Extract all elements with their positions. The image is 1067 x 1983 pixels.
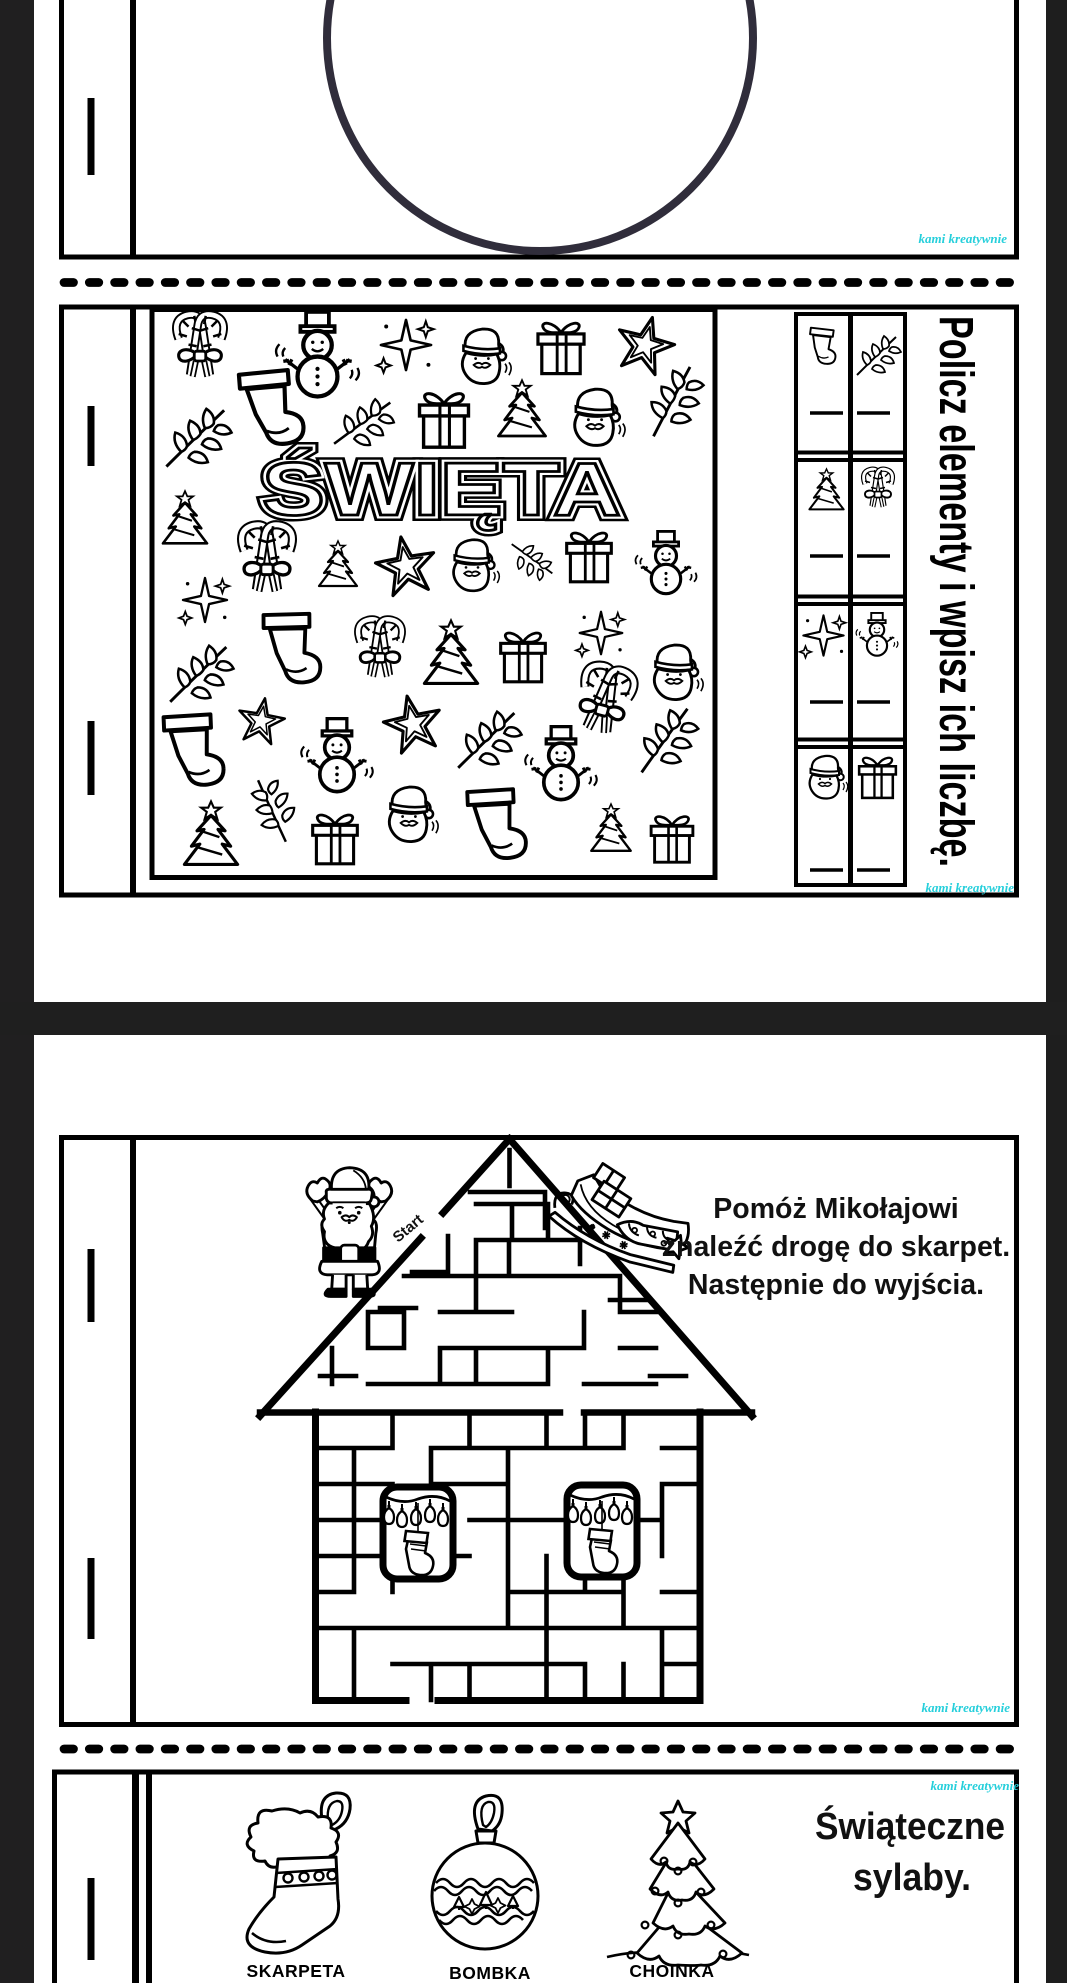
svg-text:znaleźć drogę do skarpet.: znaleźć drogę do skarpet. xyxy=(662,1231,1010,1263)
svg-text:SKARPETA: SKARPETA xyxy=(247,1961,346,1981)
svg-text:Policz elementy i wpisz ich li: Policz elementy i wpisz ich liczbę. xyxy=(929,316,982,867)
svg-text:ŚWIĘTA: ŚWIĘTA xyxy=(262,447,621,531)
svg-text:kami kreatywnie: kami kreatywnie xyxy=(922,1700,1011,1715)
svg-text:BOMBKA: BOMBKA xyxy=(449,1963,531,1983)
svg-text:Świąteczne: Świąteczne xyxy=(815,1804,1005,1848)
svg-text:kami kreatywnie: kami kreatywnie xyxy=(931,1778,1020,1793)
svg-text:Pomóż Mikołajowi: Pomóż Mikołajowi xyxy=(713,1193,958,1225)
svg-text:sylaby.: sylaby. xyxy=(853,1857,971,1899)
svg-text:kami kreatywnie: kami kreatywnie xyxy=(926,880,1015,895)
svg-text:CHOINKA: CHOINKA xyxy=(629,1961,714,1981)
svg-text:Następnie do wyjścia.: Następnie do wyjścia. xyxy=(688,1269,984,1301)
svg-text:kami kreatywnie: kami kreatywnie xyxy=(919,231,1008,246)
